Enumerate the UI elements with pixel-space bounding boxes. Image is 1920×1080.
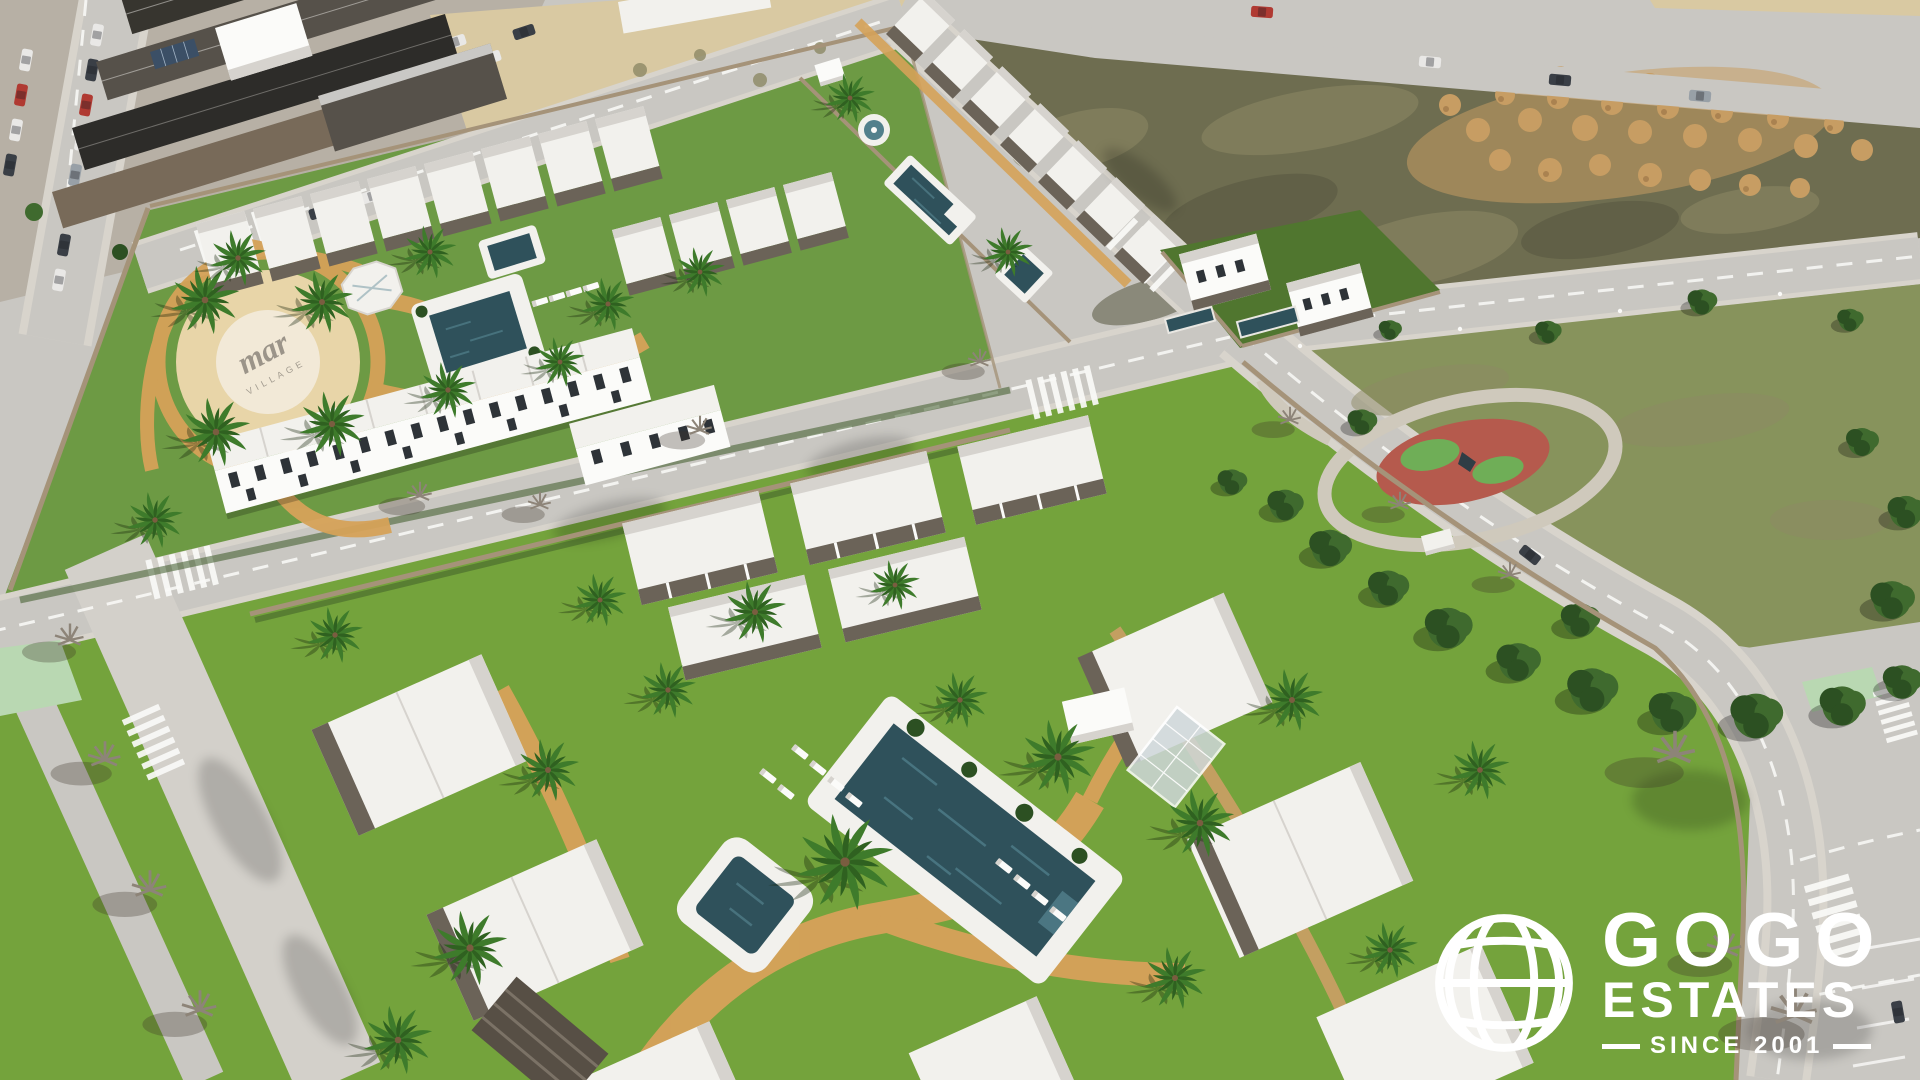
gogo-estates-logo: GOGO ESTATES SINCE 2001 xyxy=(1424,903,1886,1063)
tagline-dash-left xyxy=(1602,1044,1640,1049)
tagline-dash-right xyxy=(1833,1044,1871,1049)
logo-tagline-row: SINCE 2001 xyxy=(1602,1032,1871,1060)
fountain-pool xyxy=(858,114,890,146)
aerial-render: mar VILLAGE xyxy=(0,0,1920,1080)
logo-text: GOGO ESTATES SINCE 2001 xyxy=(1602,906,1886,1061)
logo-tagline: SINCE 2001 xyxy=(1650,1032,1823,1060)
globe-icon xyxy=(1424,903,1584,1063)
logo-brand-bottom: ESTATES xyxy=(1602,975,1860,1026)
logo-brand-top: GOGO xyxy=(1602,906,1886,976)
